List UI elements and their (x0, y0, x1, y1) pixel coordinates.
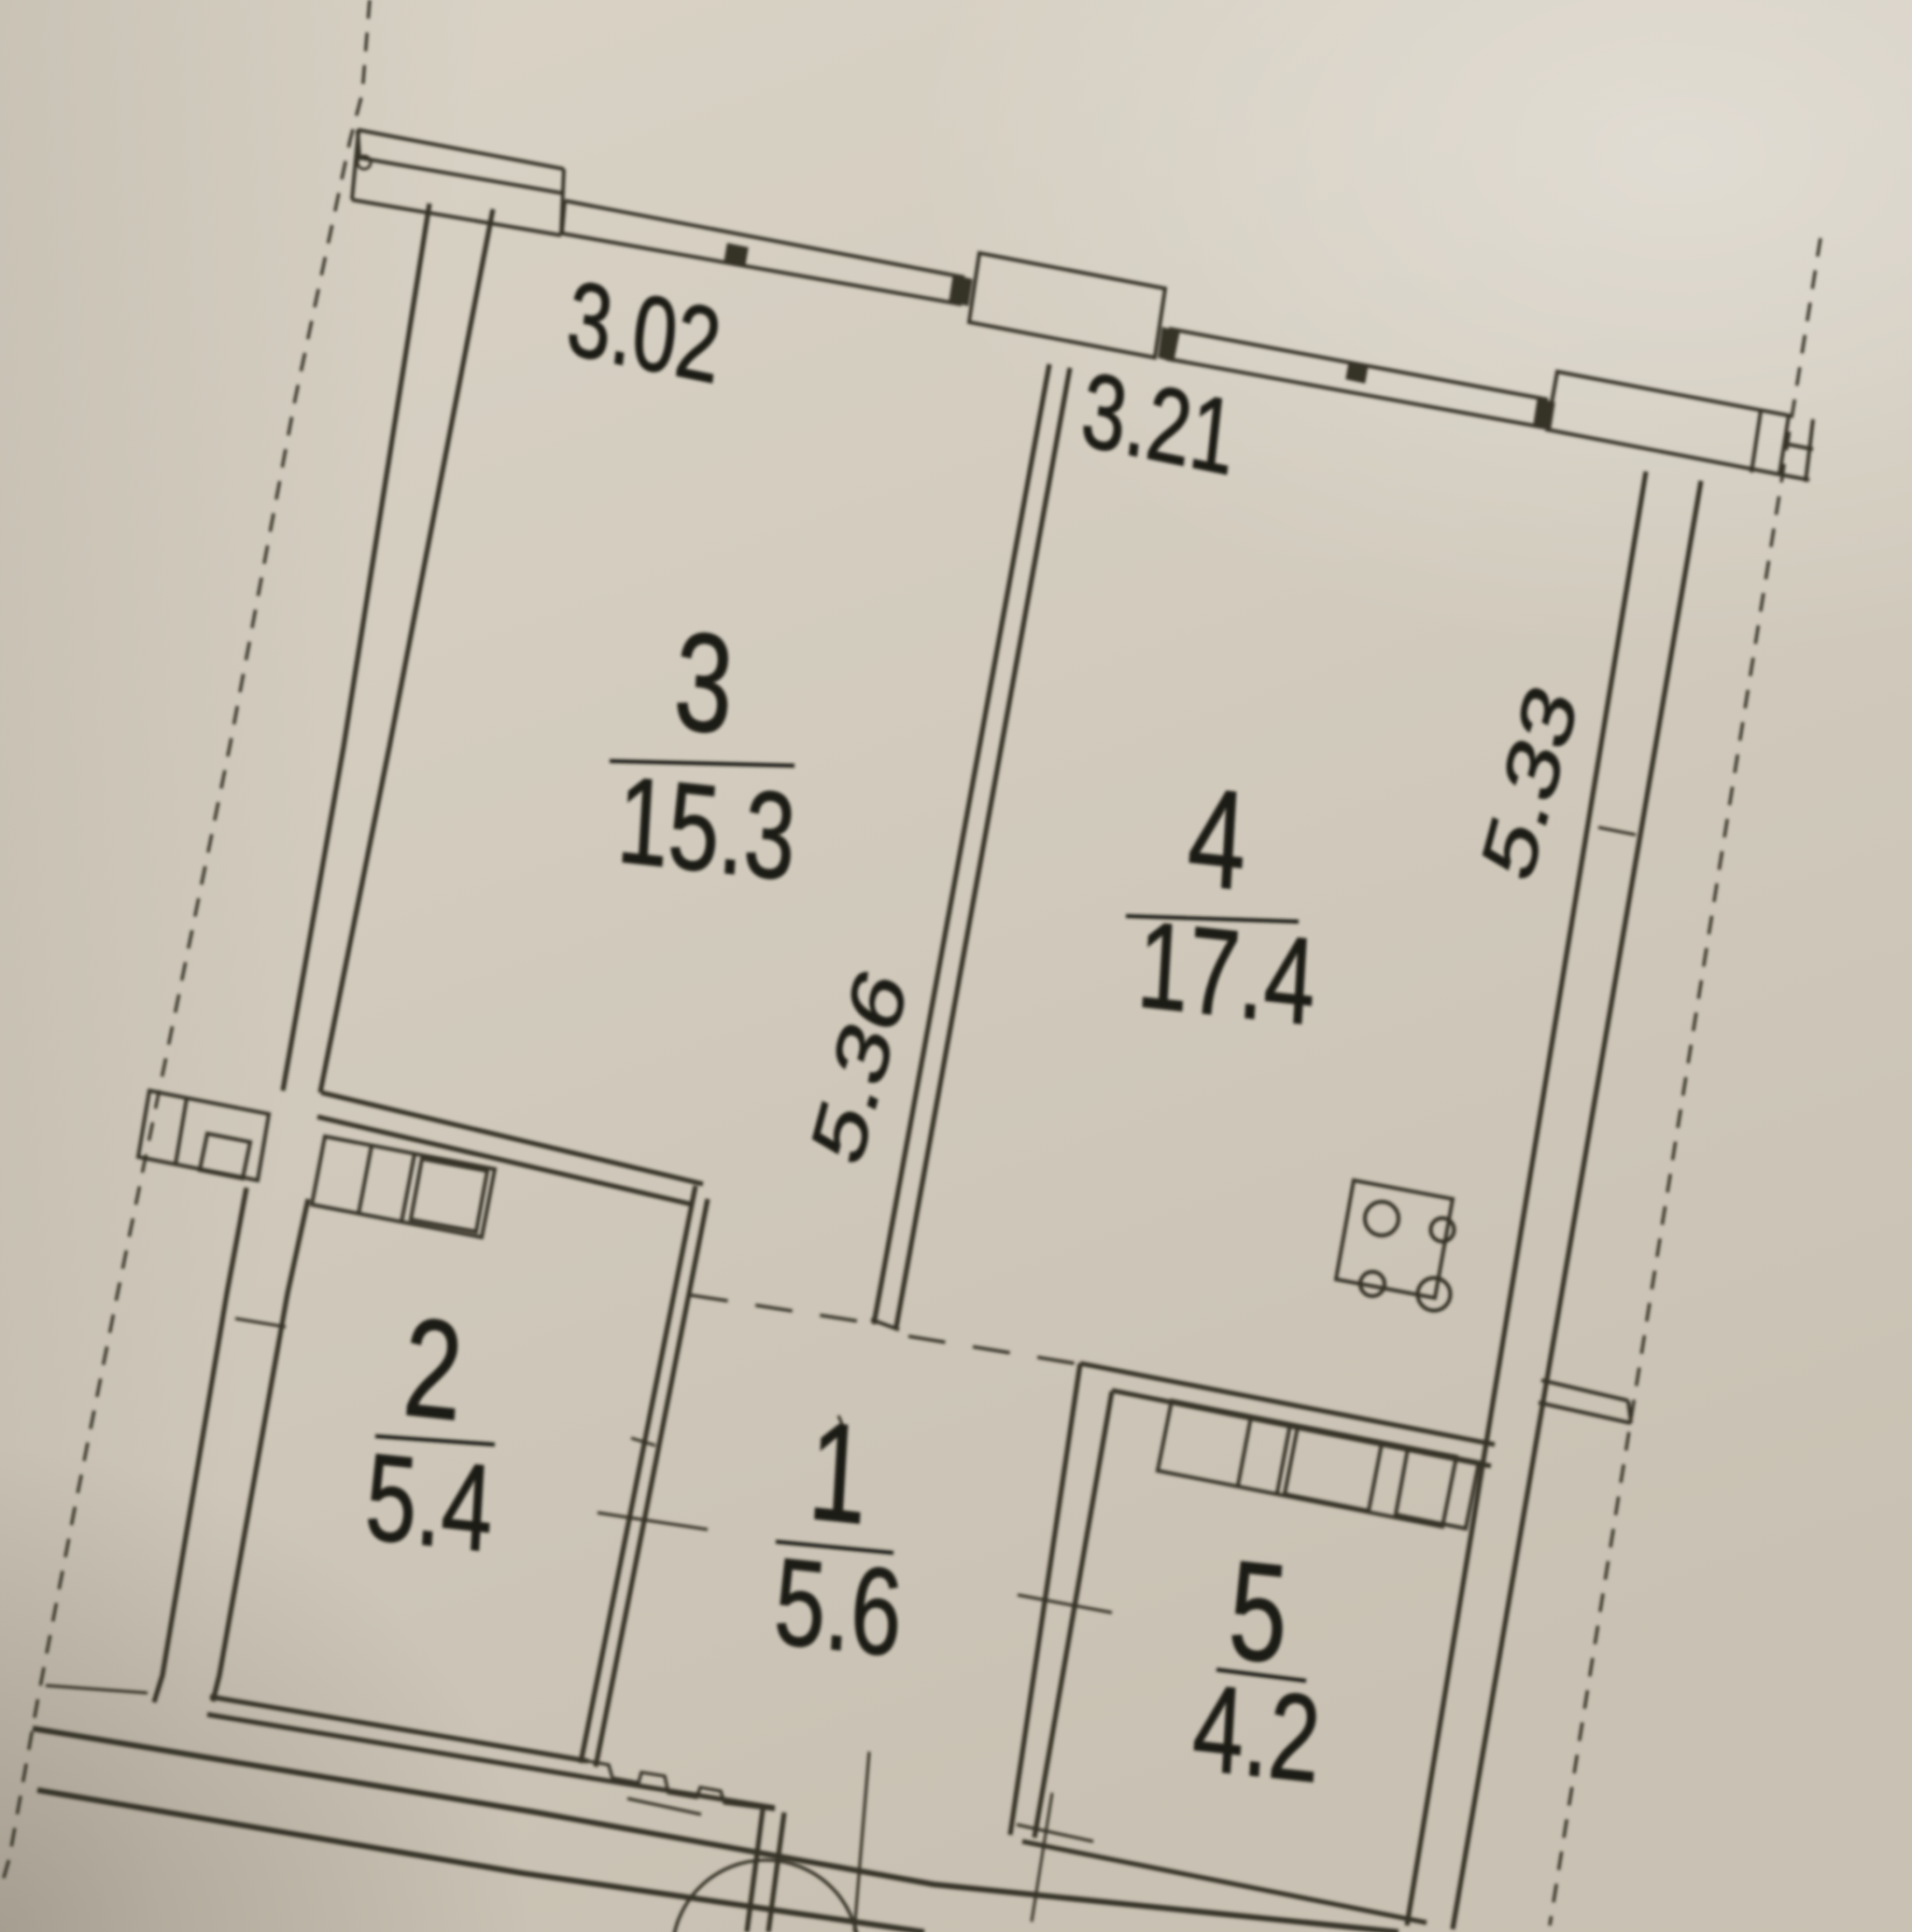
svg-text:4: 4 (1184, 757, 1250, 919)
svg-text:3: 3 (670, 601, 737, 763)
svg-text:1: 1 (805, 1391, 871, 1553)
svg-text:3.21: 3.21 (1076, 350, 1241, 499)
svg-text:2: 2 (400, 1288, 466, 1449)
svg-text:5.33: 5.33 (1467, 671, 1595, 895)
svg-text:5.4: 5.4 (362, 1427, 497, 1578)
svg-text:5.6: 5.6 (771, 1531, 906, 1683)
svg-text:4.2: 4.2 (1189, 1657, 1324, 1809)
svg-text:15.3: 15.3 (614, 750, 799, 906)
svg-text:17.4: 17.4 (1134, 895, 1319, 1051)
svg-text:3.02: 3.02 (562, 259, 726, 407)
